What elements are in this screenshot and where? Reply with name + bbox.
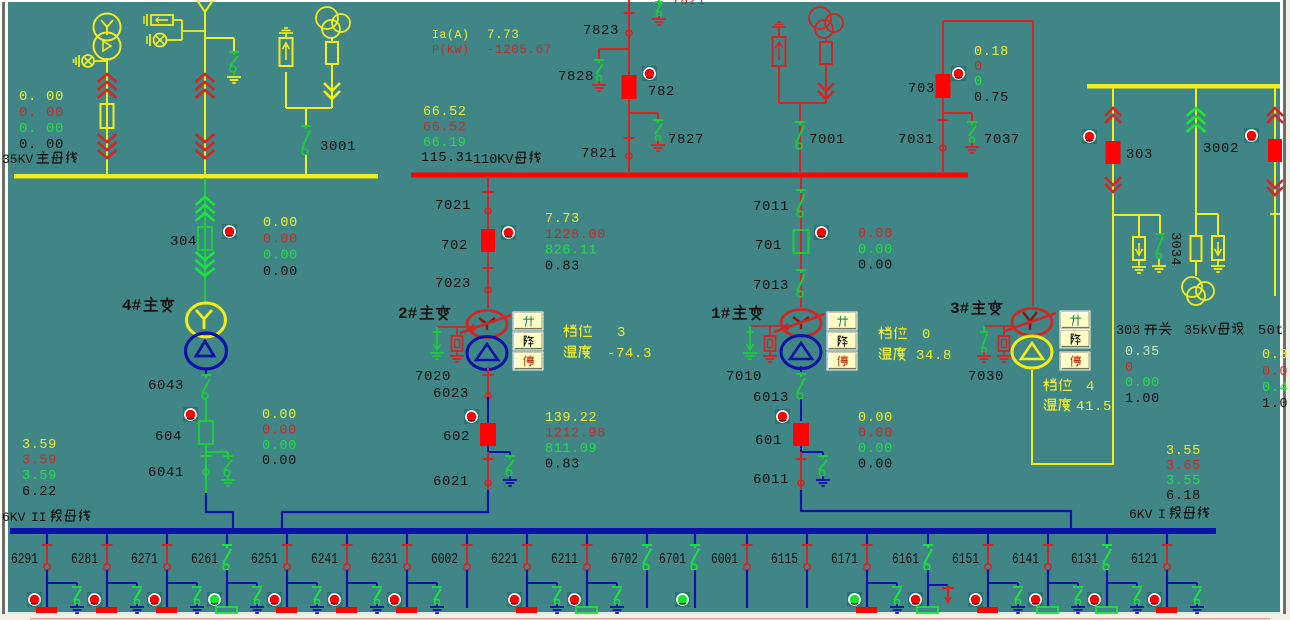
svg-text:0.00: 0.00 [263,249,298,264]
svg-text:139.22: 139.22 [545,411,597,426]
svg-text:0.83: 0.83 [545,259,580,274]
svg-text:6211: 6211 [551,552,578,568]
svg-text:0.00: 0.00 [858,259,893,274]
svg-text:6141: 6141 [1012,552,1039,568]
svg-text:0.4: 0.4 [1262,381,1288,396]
svg-text:0.00: 0.00 [858,227,893,242]
svg-text:602: 602 [443,429,470,445]
svg-text:1.00: 1.00 [1125,392,1160,407]
svg-text:115.31: 115.31 [421,151,473,166]
svg-text:0.00: 0.00 [858,411,893,426]
svg-text:3.59: 3.59 [22,454,57,469]
svg-text:0: 0 [1125,361,1134,376]
svg-text:7.73: 7.73 [545,212,580,227]
svg-text:0.00: 0.00 [263,216,298,231]
svg-text:50t: 50t [1258,324,1284,339]
svg-text:0.00: 0.00 [262,408,297,423]
svg-text:7030: 7030 [968,369,1004,385]
svg-text:0.00: 0.00 [262,454,297,469]
svg-text:6.22: 6.22 [22,485,57,500]
svg-text:782: 782 [648,84,675,100]
svg-text:34.8: 34.8 [916,348,952,364]
svg-text:P(KW): P(KW) [432,44,470,57]
svg-text:6041: 6041 [148,465,184,481]
svg-text:35kV: 35kV [1184,324,1217,339]
svg-text:6002: 6002 [431,552,458,568]
svg-text:-1205.67: -1205.67 [487,43,552,57]
svg-text:6115: 6115 [771,552,798,568]
svg-text:110KV: 110KV [473,153,514,168]
svg-text:0.00: 0.00 [262,439,297,454]
svg-text:6291: 6291 [11,552,38,568]
svg-text:6251: 6251 [251,552,278,568]
svg-text:6171: 6171 [831,552,858,568]
svg-text:6231: 6231 [371,552,398,568]
svg-text:0. 00: 0. 00 [19,137,64,153]
svg-text:3: 3 [617,325,626,341]
svg-text:6.18: 6.18 [1166,489,1201,504]
svg-text:7827: 7827 [668,132,704,148]
svg-text:6261: 6261 [191,552,218,568]
svg-text:601: 601 [755,433,782,449]
svg-text:7010: 7010 [726,369,762,385]
svg-text:7821: 7821 [672,0,706,8]
svg-text:0.83: 0.83 [545,458,580,473]
svg-text:1#: 1# [711,305,731,323]
svg-text:3002: 3002 [1203,141,1239,157]
svg-text:7037: 7037 [984,132,1020,148]
svg-text:-74.3: -74.3 [607,346,652,362]
svg-text:6161: 6161 [892,552,919,568]
svg-text:4: 4 [1086,379,1095,395]
svg-text:6151: 6151 [952,552,979,568]
svg-text:7001: 7001 [809,132,845,148]
svg-text:0.00: 0.00 [858,442,893,457]
svg-text:0.00: 0.00 [858,427,893,442]
svg-text:7023: 7023 [435,276,471,292]
svg-text:0.00: 0.00 [1125,376,1160,391]
svg-text:7011: 7011 [753,199,789,215]
svg-text:0: 0 [974,75,983,90]
svg-text:0.35: 0.35 [1125,345,1160,360]
svg-text:7013: 7013 [753,278,789,294]
svg-text:4#: 4# [122,297,142,315]
svg-text:0. 00: 0. 00 [19,121,64,137]
svg-text:3.65: 3.65 [1166,459,1201,474]
svg-text:6701: 6701 [659,552,686,568]
svg-text:6702: 6702 [611,552,638,568]
svg-text:6KV: 6KV [2,510,26,525]
svg-text:6271: 6271 [131,552,158,568]
svg-text:7821: 7821 [581,146,617,162]
svg-text:0.00: 0.00 [263,232,298,247]
svg-text:304: 304 [170,234,197,250]
svg-text:0. 00: 0. 00 [19,105,64,121]
svg-text:1212.98: 1212.98 [545,427,606,442]
svg-text:66.52: 66.52 [423,120,467,135]
svg-text:3.55: 3.55 [1166,444,1201,459]
svg-text:0.0: 0.0 [1262,365,1288,380]
svg-text:303: 303 [1126,147,1153,163]
svg-text:66.52: 66.52 [423,105,467,120]
svg-text:41.5: 41.5 [1076,399,1112,415]
svg-text:6221: 6221 [491,552,518,568]
svg-text:6241: 6241 [311,552,338,568]
svg-text:3034: 3034 [1167,232,1183,266]
svg-text:3#: 3# [950,300,970,318]
svg-text:II: II [31,510,47,525]
svg-text:0.75: 0.75 [974,91,1009,106]
svg-text:I: I [1158,507,1166,522]
svg-text:6043: 6043 [148,378,184,394]
svg-text:604: 604 [155,429,182,445]
svg-text:7031: 7031 [898,132,934,148]
svg-text:2#: 2# [398,305,418,323]
svg-text:6281: 6281 [71,552,98,568]
svg-text:6013: 6013 [753,390,789,406]
svg-text:811.09: 811.09 [545,442,597,457]
svg-text:703: 703 [908,81,935,97]
svg-text:6023: 6023 [433,386,469,402]
svg-text:6021: 6021 [433,474,469,490]
svg-text:702: 702 [441,238,468,254]
svg-text:0.00: 0.00 [263,265,298,280]
svg-text:303: 303 [1116,324,1140,339]
svg-text:6001: 6001 [711,552,738,568]
svg-text:7021: 7021 [435,198,471,214]
svg-text:7823: 7823 [583,23,619,39]
svg-text:3001: 3001 [320,139,356,155]
svg-text:1.0: 1.0 [1262,397,1288,412]
svg-text:6011: 6011 [753,472,789,488]
svg-text:1228.00: 1228.00 [545,228,606,243]
svg-text:6121: 6121 [1131,552,1158,568]
svg-text:701: 701 [755,238,782,254]
svg-text:0.00: 0.00 [858,243,893,258]
svg-text:0. 00: 0. 00 [19,89,64,105]
svg-text:66.19: 66.19 [423,136,467,151]
svg-text:7020: 7020 [415,369,451,385]
svg-text:6KV: 6KV [1129,507,1153,522]
svg-text:7.73: 7.73 [487,28,519,42]
svg-text:0.3: 0.3 [1262,348,1288,363]
svg-text:0.18: 0.18 [974,45,1009,60]
svg-text:0: 0 [922,327,931,343]
svg-text:35KV: 35KV [2,152,33,167]
svg-text:0: 0 [974,60,983,75]
svg-text:7828: 7828 [558,69,594,85]
svg-text:826.11: 826.11 [545,244,597,259]
svg-text:6131: 6131 [1071,552,1098,568]
svg-text:3.59: 3.59 [22,438,57,453]
svg-text:3.55: 3.55 [1166,474,1201,489]
svg-text:Ia(A): Ia(A) [432,29,470,42]
svg-text:0.00: 0.00 [858,458,893,473]
svg-text:3.59: 3.59 [22,469,57,484]
svg-text:0.00: 0.00 [262,423,297,438]
